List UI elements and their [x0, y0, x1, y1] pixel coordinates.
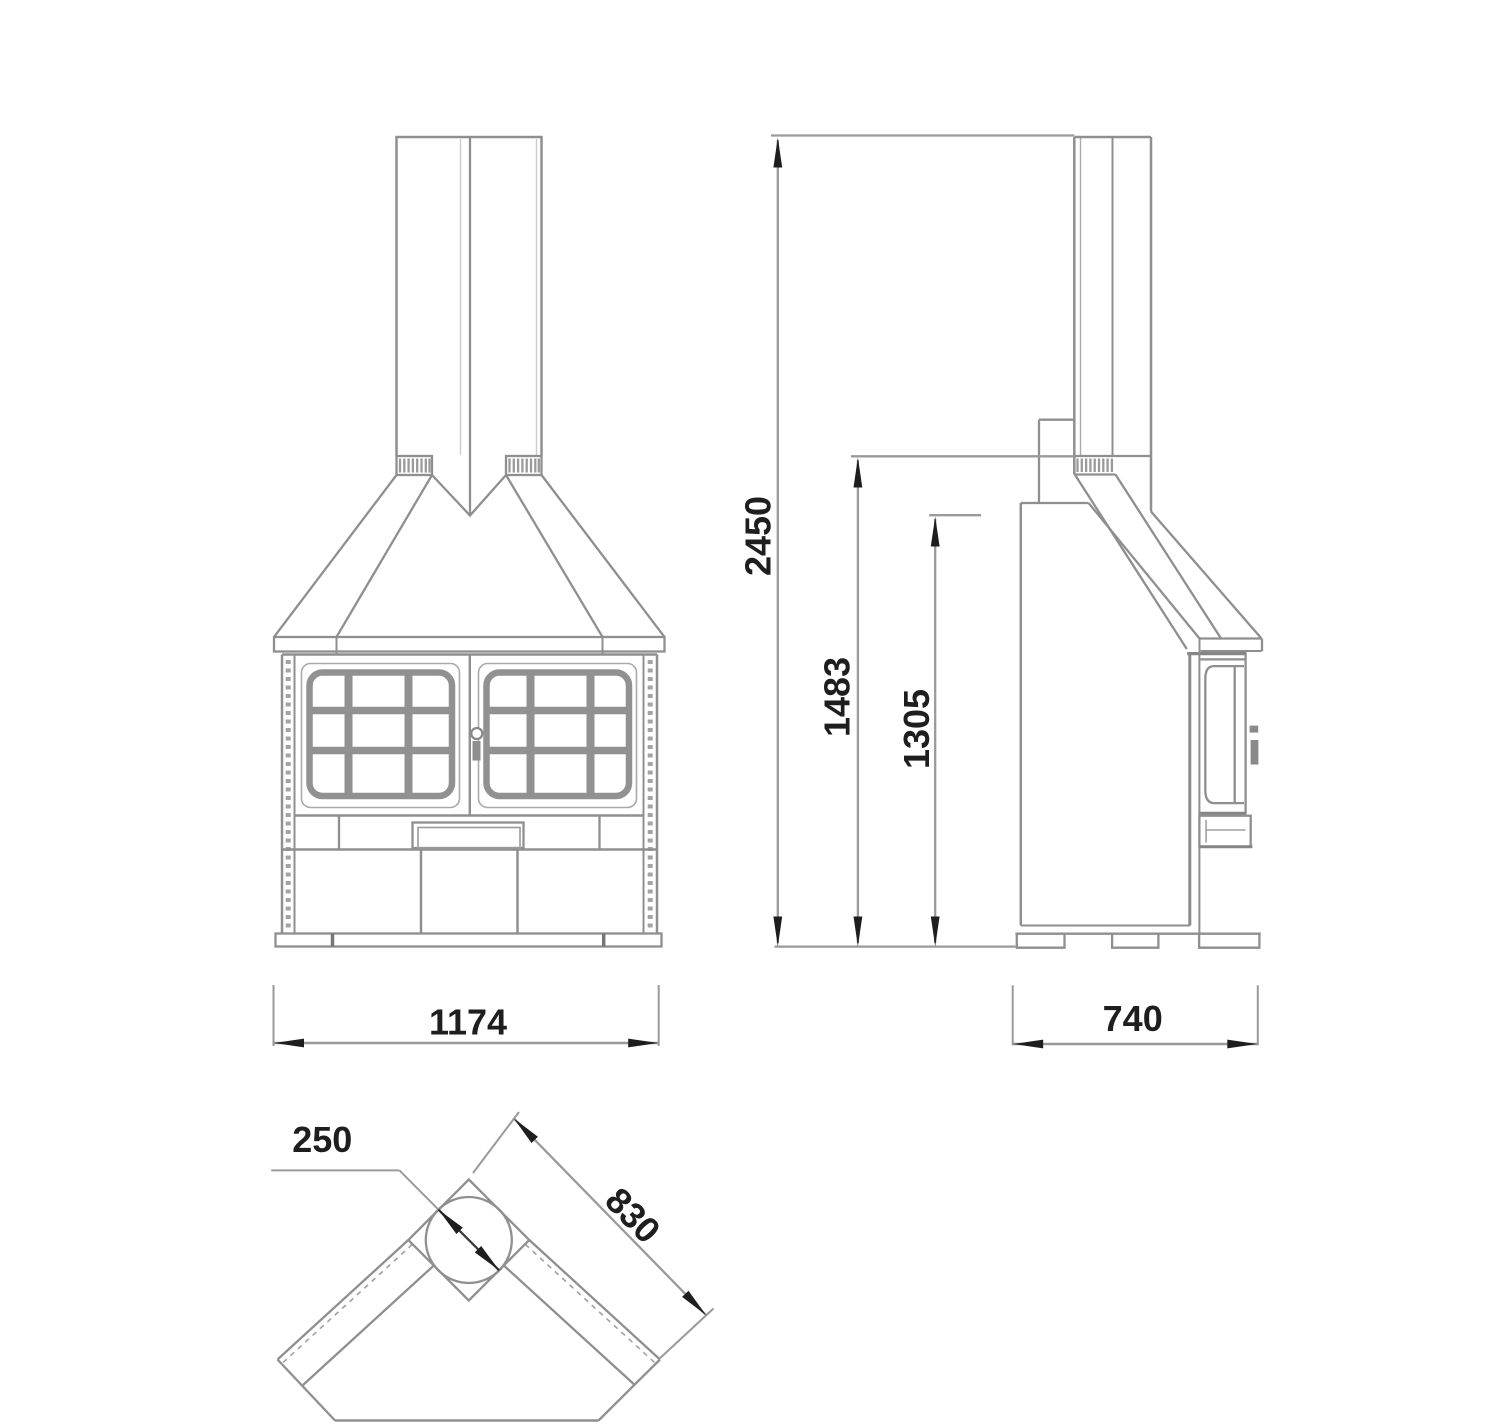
svg-text:1305: 1305 [896, 689, 937, 769]
svg-text:2450: 2450 [738, 496, 779, 576]
svg-text:740: 740 [1103, 998, 1163, 1039]
svg-text:250: 250 [292, 1119, 352, 1160]
svg-text:1174: 1174 [429, 1002, 507, 1043]
svg-text:1483: 1483 [817, 657, 858, 737]
